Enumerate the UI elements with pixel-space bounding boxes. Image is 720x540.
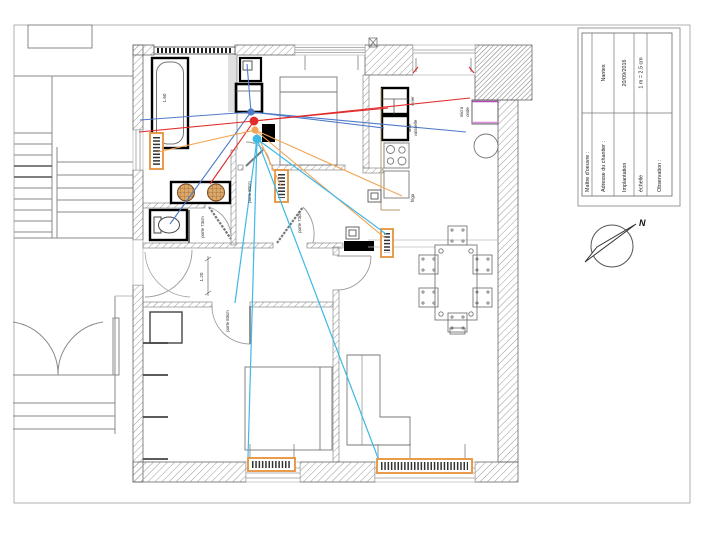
titleblock-label-architect: Maître d'oeuvre : bbox=[585, 152, 591, 192]
dot-blue bbox=[247, 108, 254, 115]
window-top-kitchen bbox=[413, 45, 475, 75]
bedroom-bottom-door-label: porte 83cm bbox=[225, 310, 230, 332]
microwave-label-1: micro bbox=[459, 106, 464, 117]
titleblock-label-implantation: Implantation bbox=[622, 163, 628, 192]
titleblock-value-city: Nantes bbox=[601, 64, 607, 81]
sink-label: evier bbox=[410, 96, 415, 106]
bathtub-dim-label: 1.60 bbox=[162, 93, 167, 102]
hall-dim-label: 1.20 bbox=[199, 272, 204, 281]
titleblock-label-scale: échelle bbox=[639, 175, 645, 192]
floor-plan-canvas: 1.60 porte 73cm porte 80cm porte 73cm po… bbox=[0, 0, 720, 540]
titleblock-label-observation: Observation : bbox=[657, 160, 663, 192]
fridge-label: frigo bbox=[410, 193, 415, 202]
tv-unit bbox=[344, 241, 374, 251]
window-left bbox=[133, 130, 143, 170]
electrical-panel bbox=[262, 124, 275, 142]
dot-orange bbox=[251, 126, 258, 133]
dishwasher-label-1: lave bbox=[407, 123, 412, 131]
wc-door-label: porte 73cm bbox=[200, 216, 205, 238]
drawing-sheet: 1.60 porte 73cm porte 80cm porte 73cm po… bbox=[0, 0, 720, 540]
bathroom-window-grille bbox=[154, 47, 235, 54]
microwave-label-2: onde bbox=[465, 107, 470, 117]
title-block: Maître d'oeuvre : Adresse du chantier : … bbox=[578, 28, 680, 206]
dot-red bbox=[250, 117, 259, 126]
dishwasher-label-2: vaisselle bbox=[413, 119, 418, 136]
titleblock-label-address: Adresse du chantier : bbox=[601, 141, 607, 192]
entry-opening bbox=[133, 240, 143, 285]
living-door-label: porte 73cm bbox=[297, 211, 302, 233]
titleblock-value-date: 20/09/2016 bbox=[622, 60, 628, 87]
bedroom-top-door-label: porte 80cm bbox=[247, 181, 252, 203]
dot-cyan bbox=[253, 135, 262, 144]
titleblock-value-scale: 1 m = 2.5 cm bbox=[639, 57, 645, 89]
north-label: N bbox=[639, 218, 646, 228]
radiator-bedroom-bottom bbox=[248, 458, 295, 471]
